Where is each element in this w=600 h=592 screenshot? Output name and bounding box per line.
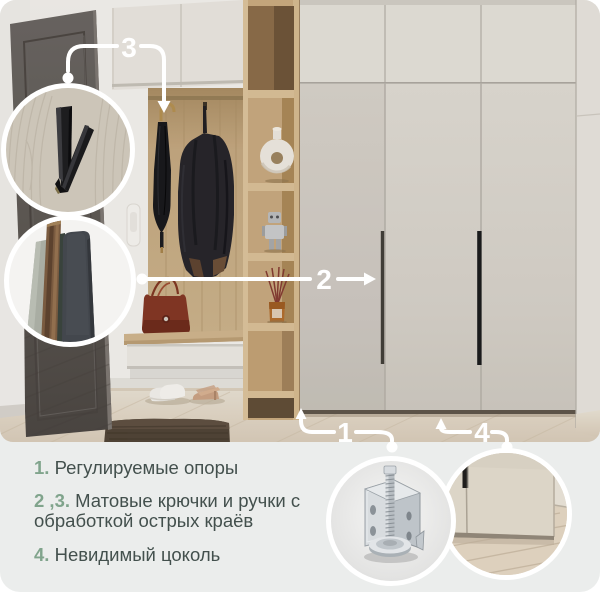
svg-text:2: 2 [316,264,332,295]
svg-text:3: 3 [121,32,137,63]
svg-text:4: 4 [474,417,490,448]
svg-text:1: 1 [337,417,353,448]
